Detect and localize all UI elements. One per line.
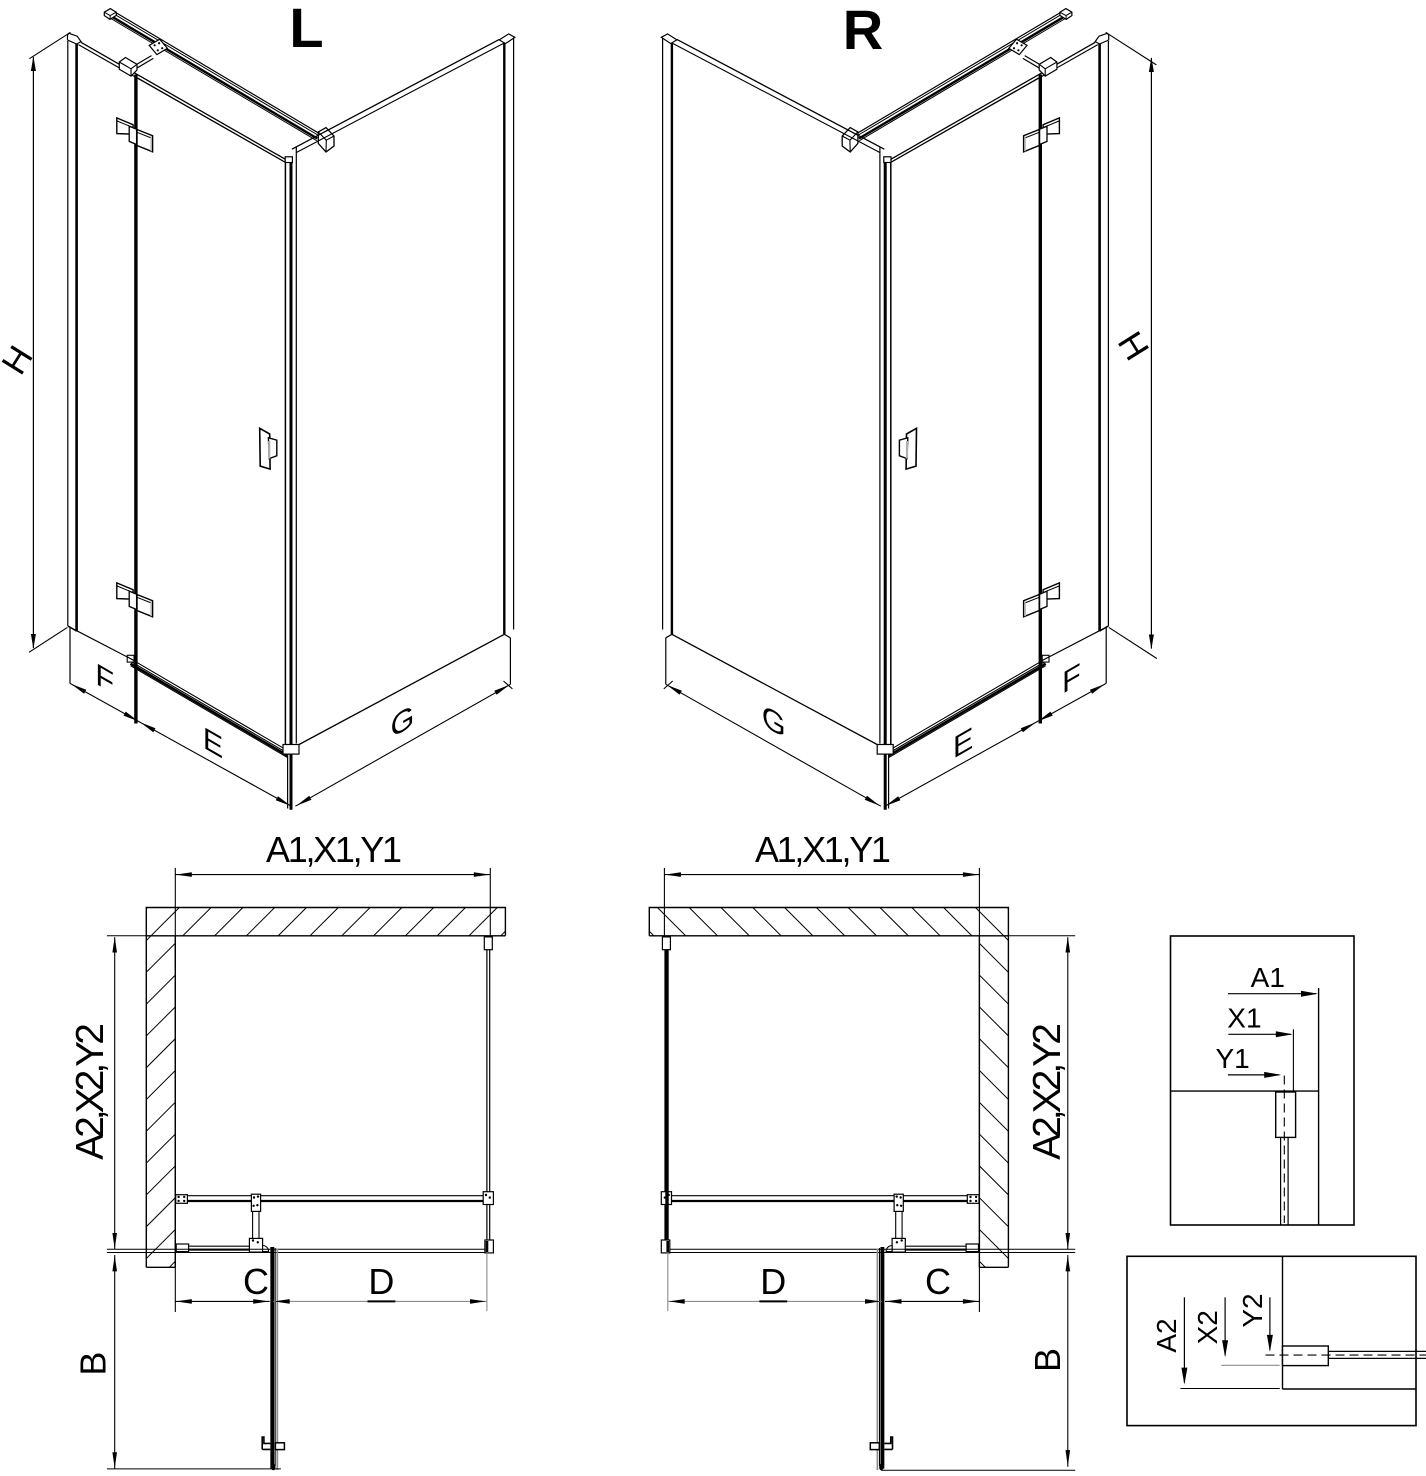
svg-text:A1,X1,Y1: A1,X1,Y1 xyxy=(755,829,890,870)
svg-text:X1: X1 xyxy=(1227,1003,1261,1034)
svg-text:H: H xyxy=(0,339,41,381)
svg-text:A2,X2,Y2: A2,X2,Y2 xyxy=(69,1025,112,1160)
svg-text:D: D xyxy=(368,1261,394,1302)
svg-text:L: L xyxy=(289,0,323,59)
svg-text:F: F xyxy=(95,656,114,701)
svg-text:B: B xyxy=(1027,1348,1068,1372)
svg-text:Y2: Y2 xyxy=(1237,1293,1268,1327)
svg-text:G: G xyxy=(391,697,415,745)
svg-text:C: C xyxy=(243,1261,269,1302)
svg-text:R: R xyxy=(843,0,883,61)
svg-text:C: C xyxy=(925,1261,951,1302)
svg-text:D: D xyxy=(760,1261,786,1302)
svg-text:A1: A1 xyxy=(1251,962,1285,993)
svg-text:A2,X2,Y2: A2,X2,Y2 xyxy=(1026,1025,1069,1160)
svg-text:F: F xyxy=(1062,656,1081,701)
svg-text:Y1: Y1 xyxy=(1215,1043,1249,1074)
svg-text:G: G xyxy=(762,697,786,745)
svg-text:A1,X1,Y1: A1,X1,Y1 xyxy=(266,829,401,870)
svg-text:A2: A2 xyxy=(1151,1318,1182,1352)
svg-text:X2: X2 xyxy=(1192,1310,1223,1344)
svg-text:B: B xyxy=(73,1352,114,1376)
svg-text:H: H xyxy=(1110,325,1156,367)
